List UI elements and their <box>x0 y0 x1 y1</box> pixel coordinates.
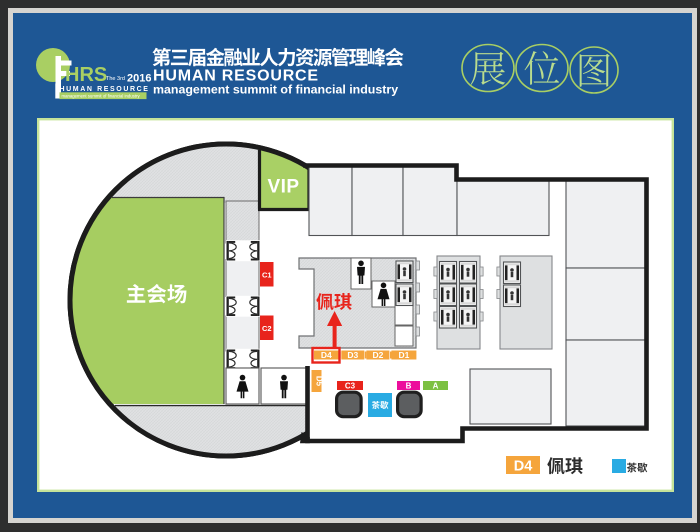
svg-text:C2: C2 <box>262 324 272 333</box>
svg-text:HUMAN RESOURCE: HUMAN RESOURCE <box>60 86 150 93</box>
svg-text:management summit of financial: management summit of financial industry <box>62 94 141 99</box>
svg-text:D4: D4 <box>514 459 533 475</box>
svg-text:D4: D4 <box>321 350 332 360</box>
svg-text:The 3rd: The 3rd <box>106 76 125 82</box>
svg-text:D1: D1 <box>398 350 409 360</box>
svg-text:HRS: HRS <box>65 64 107 86</box>
svg-text:B: B <box>406 382 412 391</box>
svg-text:C3: C3 <box>345 382 356 391</box>
svg-text:D3: D3 <box>347 350 358 360</box>
svg-text:C1: C1 <box>262 271 272 280</box>
svg-text:A: A <box>433 382 439 391</box>
svg-text:VIP: VIP <box>267 177 299 198</box>
svg-text:D5: D5 <box>315 376 324 387</box>
svg-text:management summit of financial: management summit of financial industry <box>153 83 398 97</box>
svg-text:2016: 2016 <box>127 73 151 85</box>
svg-text:D2: D2 <box>372 350 383 360</box>
